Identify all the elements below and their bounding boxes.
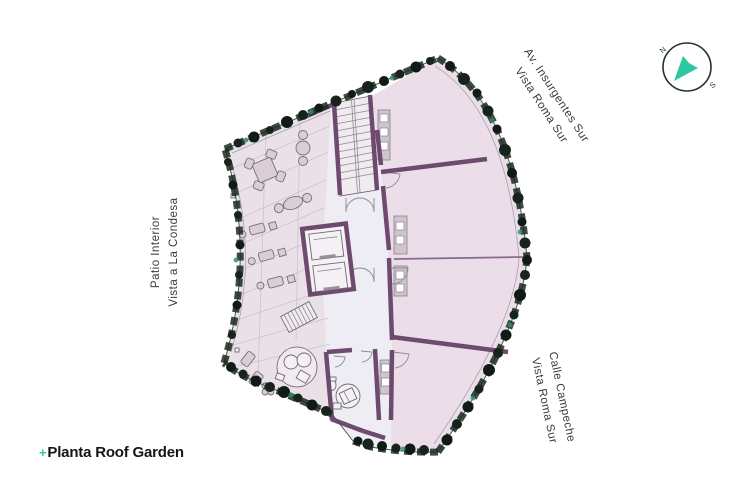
compass-arrow-icon bbox=[674, 56, 698, 81]
title-text: Planta Roof Garden bbox=[47, 444, 183, 461]
floor-plan-svg: N S bbox=[0, 0, 750, 500]
terrace-post bbox=[235, 348, 239, 352]
street-label-line: Vista a La Condesa bbox=[166, 197, 184, 306]
page-title: +Planta Roof Garden bbox=[39, 444, 184, 461]
compass-south-label: S bbox=[708, 80, 718, 90]
elevator-core bbox=[302, 224, 354, 295]
floor-plan-page: N S Av. Insurgentes Sur Vista Roma Sur P… bbox=[0, 0, 750, 500]
apartment-units-zone bbox=[372, 58, 527, 452]
compass: N S bbox=[658, 43, 718, 91]
title-plus-marker: + bbox=[39, 445, 46, 460]
street-label-patio-interior: Patio Interior Vista a La Condesa bbox=[148, 197, 184, 306]
street-label-line: Patio Interior bbox=[148, 197, 166, 306]
